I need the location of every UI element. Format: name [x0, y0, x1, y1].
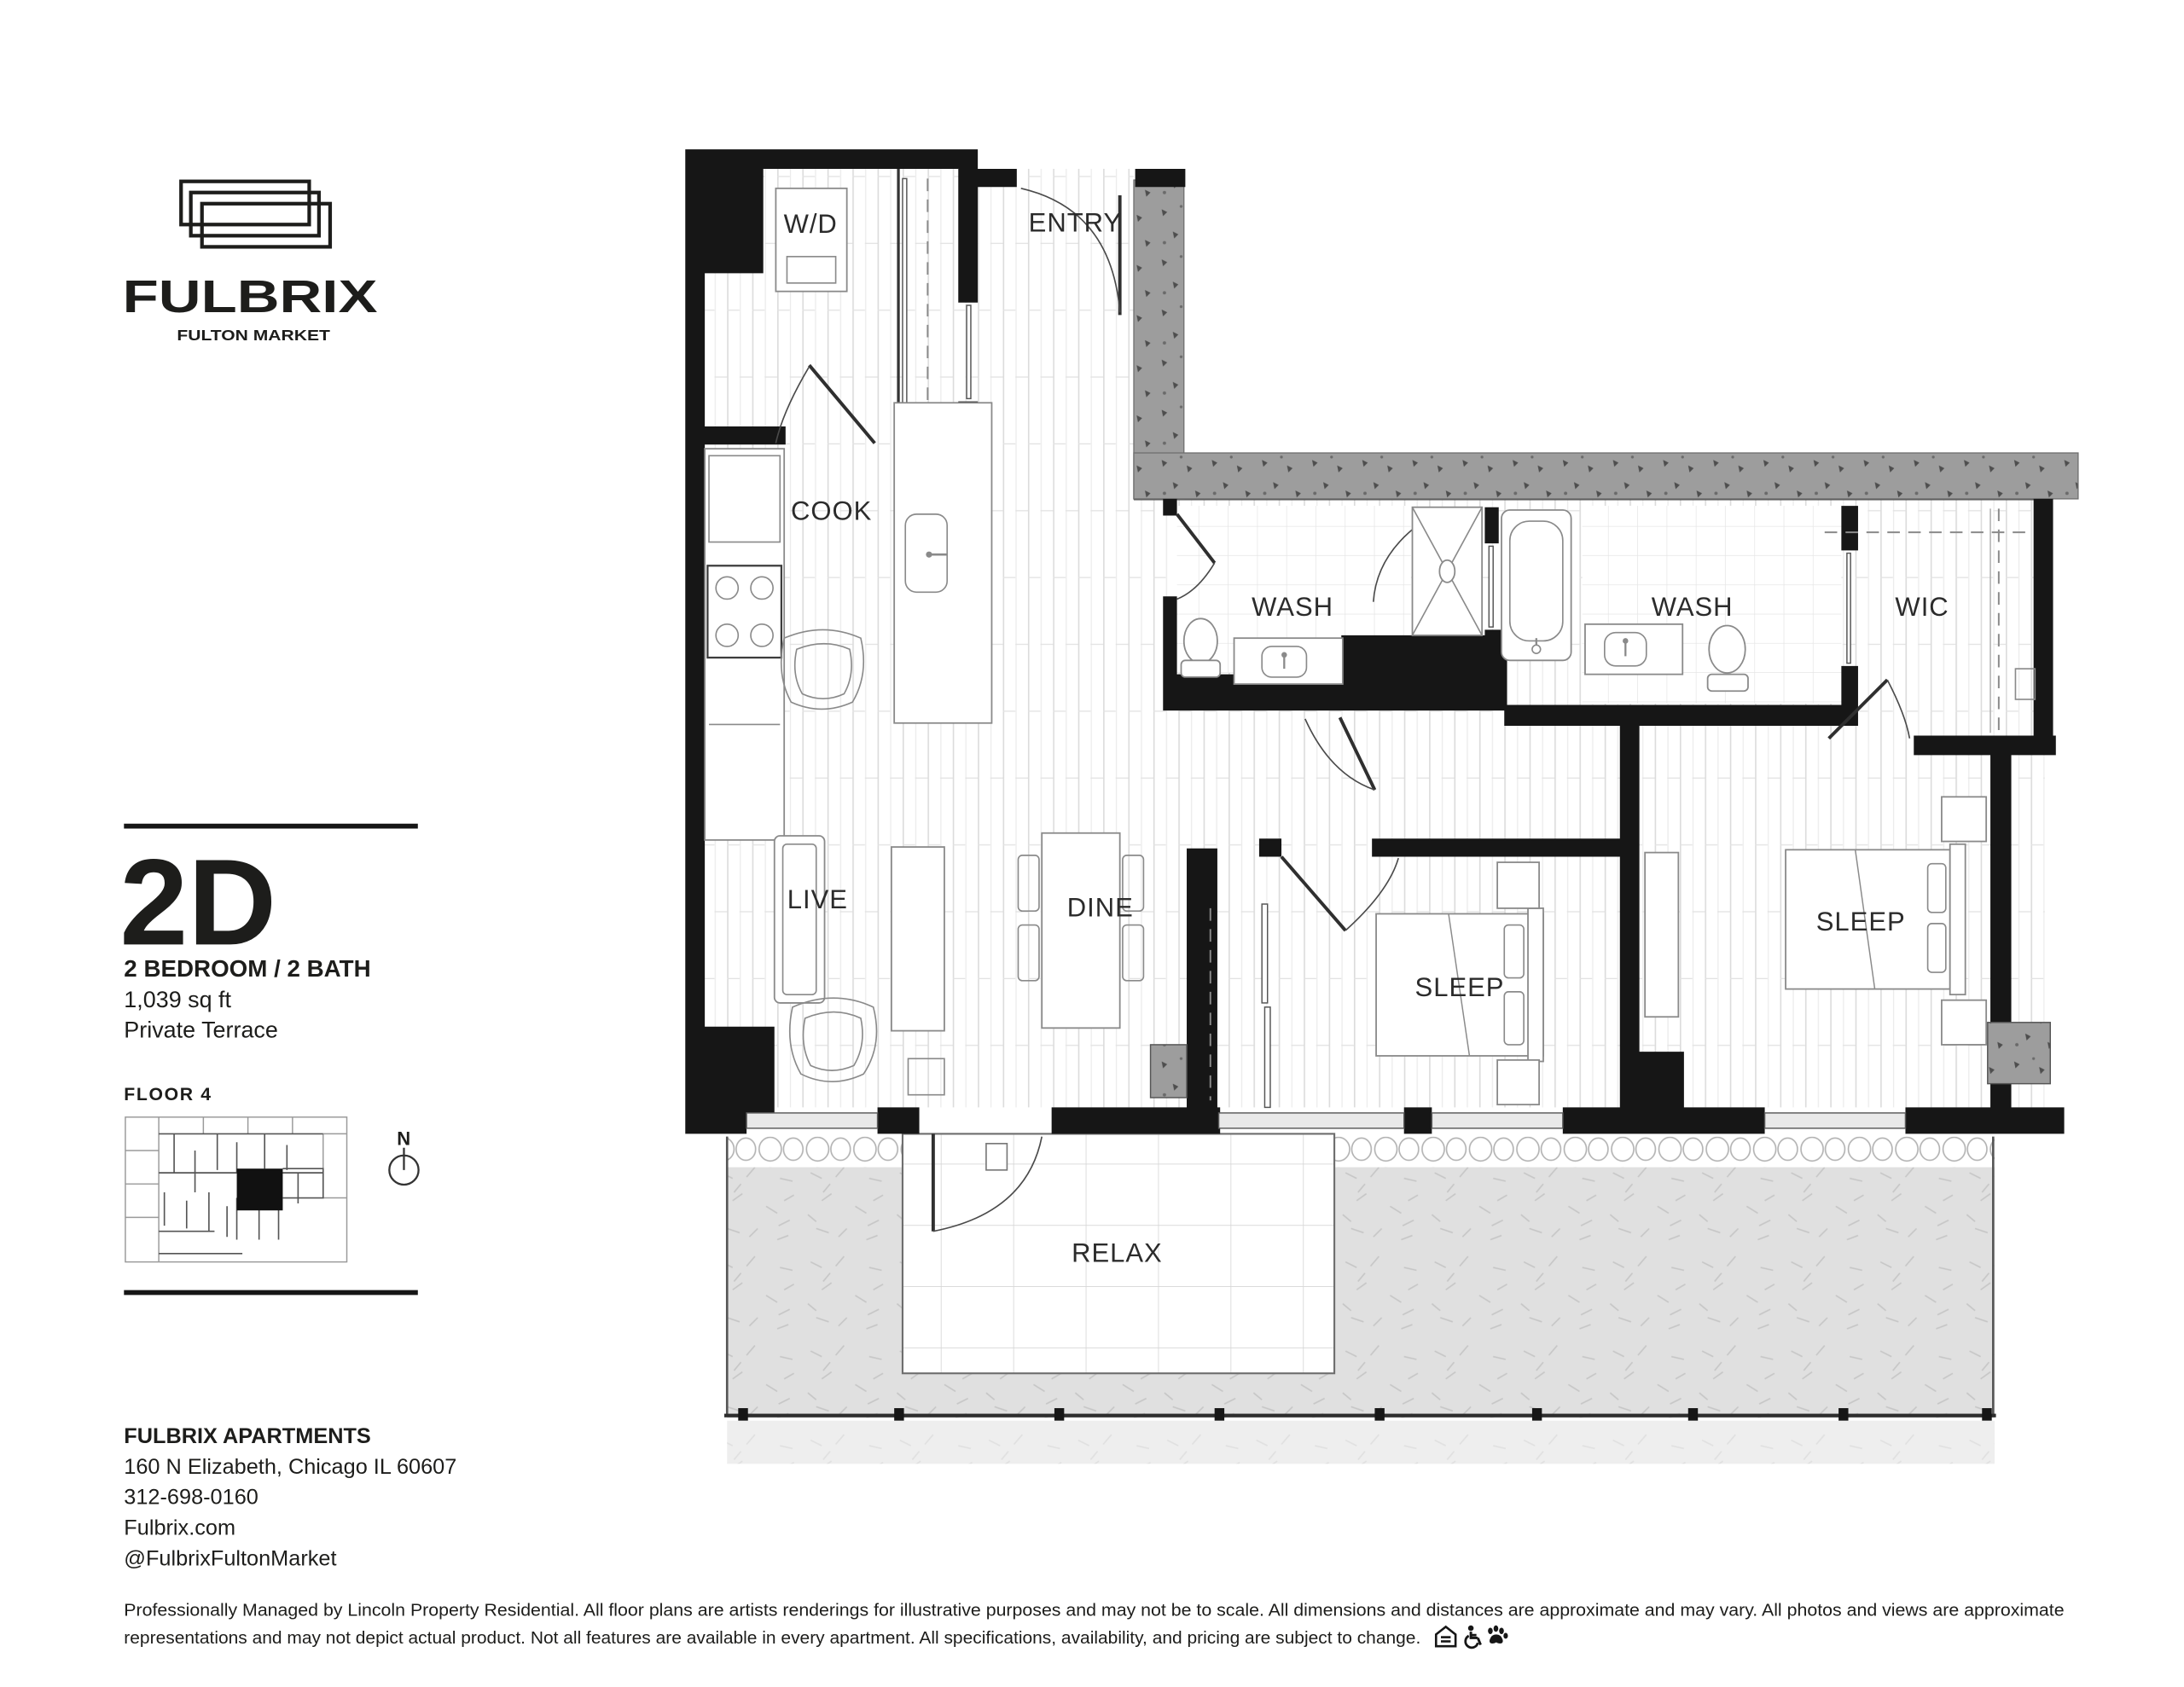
room-label-wic: WIC: [1895, 592, 1949, 622]
room-label-relax: RELAX: [1072, 1238, 1163, 1268]
brand-name: FULBRIX: [123, 271, 378, 322]
disclaimer: Professionally Managed by Lincoln Proper…: [124, 1601, 2064, 1648]
contact-social[interactable]: @FulbrixFultonMarket: [124, 1547, 336, 1571]
kitchen-counter: [705, 449, 784, 840]
floor-label: FLOOR 4: [124, 1085, 212, 1104]
equal-housing-icon: [1436, 1626, 1455, 1646]
terrace-walkway: [727, 1421, 1995, 1464]
disclaimer-line1: Professionally Managed by Lincoln Proper…: [124, 1601, 2064, 1620]
shower: [1413, 507, 1483, 635]
column-sleep2: [1988, 1023, 2050, 1084]
unit-type: 2 BEDROOM / 2 BATH: [124, 955, 370, 982]
key-plan-unit-highlight: [237, 1168, 283, 1210]
unit-code: 2D: [119, 834, 276, 971]
room-label-dine: DINE: [1067, 893, 1134, 923]
north-label: N: [397, 1128, 410, 1149]
room-label-sleep1: SLEEP: [1415, 972, 1505, 1002]
contact-website[interactable]: Fulbrix.com: [124, 1516, 235, 1540]
column-dine: [1151, 1045, 1187, 1098]
room-label-entry: ENTRY: [1029, 207, 1122, 237]
washer-dryer: [775, 188, 846, 292]
logo: FULBRIX FULTON MARKET: [123, 182, 378, 344]
disclaimer-line2: representations and may not depict actua…: [124, 1629, 1420, 1648]
floor-plan: W/D ENTRY COOK WASH WASH WIC LIVE DINE S…: [685, 149, 2078, 1464]
floorplan-sheet: FULBRIX FULTON MARKET 2D 2 BEDROOM / 2 B…: [0, 0, 2184, 1687]
unit-area: 1,039 sq ft: [124, 987, 231, 1012]
unit-info: 2D 2 BEDROOM / 2 BATH 1,039 sq ft Privat…: [119, 834, 370, 1104]
north-arrow: N: [389, 1128, 418, 1185]
room-label-cook: COOK: [791, 496, 872, 525]
room-label-wash2: WASH: [1652, 592, 1734, 622]
brand-tagline: FULTON MARKET: [177, 327, 330, 344]
pet-friendly-icon: [1488, 1626, 1507, 1644]
room-label-wd: W/D: [784, 209, 838, 239]
accessibility-icon: [1466, 1626, 1481, 1648]
building-key-plan: [125, 1117, 347, 1262]
stove: [707, 565, 781, 658]
private-terrace: [724, 1133, 1996, 1464]
terrace-rail: [724, 1414, 1996, 1417]
contact-block: FULBRIX APARTMENTS 160 N Elizabeth, Chic…: [124, 1424, 456, 1571]
sidebar: FULBRIX FULTON MARKET 2D 2 BEDROOM / 2 B…: [119, 182, 456, 1571]
kitchen-island: [894, 403, 991, 723]
stacked-rectangles-icon: [181, 182, 330, 247]
contact-phone: 312-698-0160: [124, 1486, 258, 1510]
room-label-wash1: WASH: [1252, 592, 1333, 622]
unit-feature: Private Terrace: [124, 1017, 278, 1043]
bathtub: [1501, 510, 1571, 660]
contact-address: 160 N Elizabeth, Chicago IL 60607: [124, 1455, 456, 1479]
room-label-live: LIVE: [787, 884, 848, 914]
patio-planter: [986, 1144, 1007, 1170]
room-label-sleep2: SLEEP: [1816, 907, 1906, 936]
contact-name: FULBRIX APARTMENTS: [124, 1424, 371, 1448]
upper-terrace-concrete: [1134, 180, 2078, 499]
